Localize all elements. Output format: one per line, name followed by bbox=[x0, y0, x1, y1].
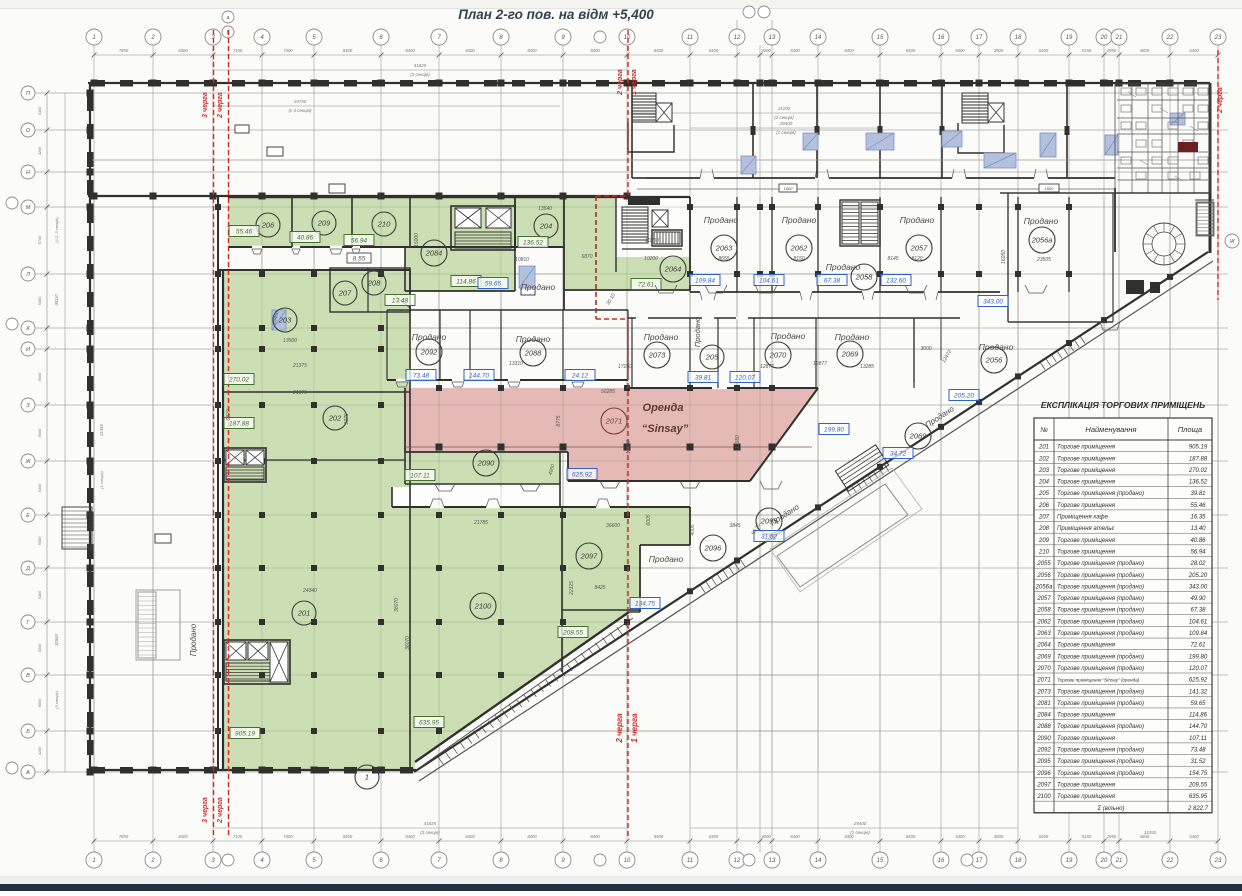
svg-text:“Sinsay”: “Sinsay” bbox=[642, 423, 689, 435]
svg-text:Л: Л bbox=[25, 272, 30, 278]
svg-text:Продано: Продано bbox=[900, 215, 935, 225]
svg-text:6400: 6400 bbox=[1039, 834, 1049, 839]
svg-text:21375: 21375 bbox=[292, 363, 307, 369]
svg-text:208: 208 bbox=[1038, 526, 1050, 532]
svg-text:38110: 38110 bbox=[54, 294, 59, 306]
svg-text:3400: 3400 bbox=[38, 106, 42, 115]
svg-text:Торгове приміщення (продано): Торгове приміщення (продано) bbox=[1057, 654, 1144, 660]
svg-text:31845: 31845 bbox=[54, 634, 59, 646]
svg-text:5600: 5600 bbox=[38, 428, 42, 437]
svg-text:2: 2 bbox=[150, 858, 155, 864]
svg-text:16: 16 bbox=[938, 35, 945, 41]
svg-text:Торгове приміщення (продано): Торгове приміщення (продано) bbox=[1057, 561, 1144, 567]
svg-text:Площа: Площа bbox=[1178, 425, 1202, 434]
svg-text:208: 208 bbox=[367, 279, 381, 288]
svg-text:5150: 5150 bbox=[1082, 48, 1092, 53]
svg-text:6400: 6400 bbox=[1189, 48, 1199, 53]
svg-text:5300: 5300 bbox=[38, 536, 42, 545]
svg-text:2 черга: 2 черга bbox=[217, 797, 224, 824]
svg-text:2081: 2081 bbox=[1036, 701, 1050, 707]
svg-text:15000: 15000 bbox=[414, 233, 420, 247]
svg-text:23: 23 bbox=[1214, 35, 1222, 41]
svg-text:134.75: 134.75 bbox=[635, 601, 655, 608]
svg-text:8400: 8400 bbox=[343, 48, 353, 53]
svg-text:104.61: 104.61 bbox=[759, 278, 779, 285]
svg-text:Найменування: Найменування bbox=[1085, 425, 1136, 434]
svg-text:199.80: 199.80 bbox=[1189, 654, 1208, 660]
svg-text:39.81: 39.81 bbox=[695, 375, 712, 382]
svg-text:2090: 2090 bbox=[1036, 736, 1051, 742]
svg-text:2071: 2071 bbox=[605, 417, 623, 426]
svg-text:Продано: Продано bbox=[412, 332, 447, 342]
svg-text:Торгове приміщення (продано): Торгове приміщення (продано) bbox=[1057, 608, 1144, 614]
svg-text:А: А bbox=[25, 770, 30, 776]
svg-text:2070: 2070 bbox=[1036, 666, 1051, 672]
svg-text:204: 204 bbox=[539, 222, 553, 231]
svg-text:Торгове приміщення (продано): Торгове приміщення (продано) bbox=[1057, 491, 1144, 497]
svg-text:Торгове приміщення: Торгове приміщення bbox=[1057, 549, 1116, 555]
svg-text:2090: 2090 bbox=[477, 459, 496, 468]
svg-text:8400: 8400 bbox=[178, 48, 188, 53]
svg-text:Продано: Продано bbox=[835, 332, 870, 342]
svg-text:Оренда: Оренда bbox=[643, 402, 684, 414]
svg-text:2062: 2062 bbox=[790, 244, 809, 253]
svg-text:6400: 6400 bbox=[709, 834, 719, 839]
svg-text:5400: 5400 bbox=[38, 590, 42, 599]
svg-text:203: 203 bbox=[1038, 468, 1050, 474]
svg-text:205: 205 bbox=[705, 353, 719, 362]
svg-text:2100: 2100 bbox=[474, 602, 493, 611]
svg-text:6400: 6400 bbox=[1189, 834, 1199, 839]
svg-text:(3 секція): (3 секція) bbox=[54, 691, 59, 709]
svg-text:41825: 41825 bbox=[424, 821, 437, 826]
svg-text:5400: 5400 bbox=[955, 48, 965, 53]
svg-text:8400: 8400 bbox=[654, 48, 664, 53]
svg-text:8400: 8400 bbox=[654, 834, 664, 839]
svg-text:13: 13 bbox=[769, 858, 776, 864]
svg-text:Торгове приміщення (продано): Торгове приміщення (продано) bbox=[1057, 748, 1144, 754]
svg-text:29400: 29400 bbox=[779, 121, 793, 126]
svg-text:8655: 8655 bbox=[718, 256, 729, 262]
svg-text:16: 16 bbox=[938, 858, 945, 864]
svg-text:Торгове приміщення: Торгове приміщення bbox=[1057, 456, 1116, 462]
svg-text:17: 17 bbox=[976, 858, 983, 864]
svg-text:ЕКСПЛІКАЦІЯ ТОРГОВИХ ПРИМІЩЕНЬ: ЕКСПЛІКАЦІЯ ТОРГОВИХ ПРИМІЩЕНЬ bbox=[1041, 400, 1205, 410]
svg-text:206: 206 bbox=[1038, 503, 1050, 509]
svg-text:209.55: 209.55 bbox=[562, 630, 583, 637]
svg-text:Ж: Ж bbox=[1228, 239, 1235, 245]
svg-text:8150: 8150 bbox=[793, 256, 804, 262]
svg-text:М: М bbox=[26, 205, 31, 211]
svg-text:201: 201 bbox=[1038, 445, 1049, 451]
svg-text:199.80: 199.80 bbox=[824, 427, 844, 434]
svg-text:205: 205 bbox=[1038, 491, 1050, 497]
svg-text:Торгове приміщення (продано): Торгове приміщення (продано) bbox=[1057, 666, 1144, 672]
svg-text:24340: 24340 bbox=[302, 588, 317, 594]
svg-text:2071: 2071 bbox=[1036, 678, 1050, 684]
svg-text:2069: 2069 bbox=[1036, 654, 1051, 660]
svg-text:13310: 13310 bbox=[509, 361, 523, 367]
svg-text:6400: 6400 bbox=[790, 834, 800, 839]
svg-text:(2 секція): (2 секція) bbox=[774, 115, 794, 120]
svg-text:3000: 3000 bbox=[920, 346, 931, 352]
svg-text:13350: 13350 bbox=[735, 435, 741, 449]
svg-text:107.11: 107.11 bbox=[1189, 736, 1207, 742]
svg-text:109.84: 109.84 bbox=[695, 278, 715, 285]
svg-text:7850: 7850 bbox=[119, 48, 129, 53]
svg-text:20: 20 bbox=[1100, 35, 1108, 41]
svg-text:22: 22 bbox=[1166, 35, 1174, 41]
svg-text:Е: Е bbox=[26, 513, 30, 519]
svg-text:7100: 7100 bbox=[233, 48, 243, 53]
svg-text:16.35: 16.35 bbox=[1190, 515, 1206, 521]
svg-text:Ж: Ж bbox=[24, 459, 31, 465]
svg-text:635.95: 635.95 bbox=[419, 720, 439, 727]
svg-text:2063: 2063 bbox=[1036, 631, 1051, 637]
svg-text:8400: 8400 bbox=[343, 834, 353, 839]
svg-text:(1,2, 3 секція): (1,2, 3 секція) bbox=[54, 217, 59, 243]
svg-text:Приміщення кафе: Приміщення кафе bbox=[1057, 515, 1109, 521]
svg-text:Торгове приміщення: Торгове приміщення bbox=[1057, 643, 1116, 649]
svg-text:107.11: 107.11 bbox=[410, 473, 430, 480]
svg-text:2058: 2058 bbox=[1036, 608, 1051, 614]
svg-text:Торгове приміщення: Торгове приміщення bbox=[1057, 503, 1116, 509]
svg-text:8425: 8425 bbox=[594, 585, 605, 591]
svg-text:Торгове приміщення: Торгове приміщення bbox=[1057, 736, 1116, 742]
svg-text:187.88: 187.88 bbox=[1189, 456, 1208, 462]
svg-text:59.65: 59.65 bbox=[485, 281, 502, 288]
svg-text:8400: 8400 bbox=[590, 834, 600, 839]
svg-text:Торгове приміщення: Торгове приміщення bbox=[1057, 445, 1116, 451]
svg-text:31.52: 31.52 bbox=[761, 534, 778, 541]
svg-text:67.38: 67.38 bbox=[1190, 608, 1206, 614]
svg-text:2096: 2096 bbox=[704, 544, 723, 553]
svg-text:План 2-го пов. на відм +5,400: План 2-го пов. на відм +5,400 bbox=[458, 7, 654, 22]
svg-text:13950: 13950 bbox=[626, 440, 632, 454]
svg-text:Продано: Продано bbox=[979, 342, 1014, 352]
svg-text:17250: 17250 bbox=[618, 364, 632, 370]
svg-text:114.86: 114.86 bbox=[1189, 713, 1208, 719]
svg-text:136.52: 136.52 bbox=[523, 240, 543, 247]
svg-text:1: 1 bbox=[365, 773, 369, 782]
svg-text:270.02: 270.02 bbox=[1188, 468, 1208, 474]
svg-text:73.48: 73.48 bbox=[413, 373, 430, 380]
svg-text:72.61: 72.61 bbox=[638, 282, 655, 289]
svg-text:(1 секція): (1 секція) bbox=[99, 471, 104, 489]
svg-text:П: П bbox=[26, 91, 30, 97]
svg-text:16050: 16050 bbox=[1001, 250, 1007, 264]
svg-text:2 черга: 2 черга bbox=[615, 713, 624, 744]
svg-text:2057: 2057 bbox=[1036, 596, 1051, 602]
svg-text:205.20: 205.20 bbox=[953, 393, 974, 400]
svg-text:Торгове приміщення: Торгове приміщення bbox=[1057, 713, 1116, 719]
svg-text:2070: 2070 bbox=[769, 351, 788, 360]
svg-text:23505: 23505 bbox=[1036, 257, 1051, 263]
svg-text:5600: 5600 bbox=[38, 372, 42, 381]
svg-text:Торгове приміщення (продано): Торгове приміщення (продано) bbox=[1057, 573, 1144, 579]
svg-text:4000: 4000 bbox=[761, 834, 771, 839]
svg-text:2092: 2092 bbox=[1036, 748, 1051, 754]
svg-text:21375: 21375 bbox=[292, 390, 307, 396]
svg-text:2100: 2100 bbox=[1036, 794, 1051, 800]
svg-text:114.86: 114.86 bbox=[456, 279, 476, 286]
svg-text:8400: 8400 bbox=[906, 48, 916, 53]
svg-text:2084: 2084 bbox=[1036, 713, 1051, 719]
svg-text:144.70: 144.70 bbox=[1189, 724, 1208, 730]
svg-text:56.94: 56.94 bbox=[351, 238, 368, 245]
svg-text:Торгове приміщення (продано): Торгове приміщення (продано) bbox=[1057, 619, 1144, 625]
svg-text:2062: 2062 bbox=[1036, 619, 1051, 625]
svg-text:(3 секція): (3 секція) bbox=[410, 72, 430, 77]
svg-text:7400: 7400 bbox=[283, 834, 293, 839]
svg-text:11350: 11350 bbox=[1144, 830, 1157, 835]
svg-text:72.61: 72.61 bbox=[1190, 643, 1205, 649]
svg-text:2073: 2073 bbox=[1036, 689, 1051, 695]
svg-text:36600: 36600 bbox=[606, 523, 620, 529]
svg-text:5400: 5400 bbox=[38, 483, 42, 492]
svg-text:38070: 38070 bbox=[394, 598, 400, 612]
svg-text:625.92: 625.92 bbox=[572, 472, 592, 479]
svg-text:40.86: 40.86 bbox=[1190, 538, 1206, 544]
svg-text:2069: 2069 bbox=[909, 432, 928, 441]
svg-text:Торгове приміщення (продано): Торгове приміщення (продано) bbox=[1057, 631, 1144, 637]
svg-text:Б: Б bbox=[26, 729, 30, 735]
svg-text:5400: 5400 bbox=[38, 296, 42, 305]
svg-text:Торгове приміщення: Торгове приміщення bbox=[1057, 794, 1116, 800]
svg-text:3900: 3900 bbox=[994, 48, 1004, 53]
svg-text:Продано: Продано bbox=[704, 215, 739, 225]
svg-text:56285: 56285 bbox=[601, 389, 615, 395]
svg-text:2057: 2057 bbox=[910, 244, 929, 253]
svg-text:(1 секція): (1 секція) bbox=[776, 130, 796, 135]
svg-text:2092: 2092 bbox=[420, 348, 439, 357]
svg-text:2056: 2056 bbox=[985, 356, 1004, 365]
svg-text:1: 1 bbox=[92, 35, 95, 41]
svg-text:55.46: 55.46 bbox=[1190, 503, 1206, 509]
svg-text:59.65: 59.65 bbox=[1190, 701, 1206, 707]
svg-text:209.55: 209.55 bbox=[1188, 782, 1208, 788]
svg-text:3 черга: 3 черга bbox=[202, 92, 209, 118]
svg-text:13540: 13540 bbox=[538, 206, 552, 212]
svg-text:204: 204 bbox=[1038, 480, 1050, 486]
svg-text:34.72: 34.72 bbox=[890, 451, 907, 458]
svg-text:3900: 3900 bbox=[994, 834, 1004, 839]
svg-text:4100: 4100 bbox=[38, 746, 42, 755]
svg-text:22325: 22325 bbox=[569, 581, 575, 596]
svg-text:8400: 8400 bbox=[465, 48, 475, 53]
svg-text:1 черга: 1 черга bbox=[631, 69, 638, 95]
svg-text:1: 1 bbox=[92, 858, 95, 864]
svg-text:2058: 2058 bbox=[855, 273, 874, 282]
svg-text:210: 210 bbox=[1038, 549, 1050, 555]
svg-text:2056а: 2056а bbox=[1035, 584, 1053, 590]
svg-text:8400: 8400 bbox=[906, 834, 916, 839]
svg-text:14: 14 bbox=[815, 35, 822, 41]
svg-text:2056: 2056 bbox=[1036, 573, 1051, 579]
svg-text:210: 210 bbox=[377, 220, 391, 229]
svg-text:19: 19 bbox=[1066, 858, 1073, 864]
svg-text:Торгове приміщення “Sinsay” (о: Торгове приміщення “Sinsay” (оренда) bbox=[1057, 678, 1140, 683]
svg-text:2073: 2073 bbox=[648, 351, 667, 360]
svg-text:Продано: Продано bbox=[521, 282, 556, 292]
svg-text:7850: 7850 bbox=[119, 834, 129, 839]
svg-text:132.60: 132.60 bbox=[886, 278, 906, 285]
svg-text:Продано: Продано bbox=[693, 317, 702, 347]
svg-text:56.94: 56.94 bbox=[1190, 549, 1206, 555]
svg-text:Продано: Продано bbox=[649, 554, 684, 564]
svg-text:17: 17 bbox=[976, 35, 983, 41]
svg-text:11: 11 bbox=[687, 858, 693, 864]
svg-text:5400: 5400 bbox=[955, 834, 965, 839]
svg-text:20: 20 bbox=[1100, 858, 1108, 864]
svg-text:1950: 1950 bbox=[1107, 48, 1117, 53]
svg-text:2056а: 2056а bbox=[1031, 236, 1053, 245]
svg-text:Торгове приміщення: Торгове приміщення bbox=[1057, 468, 1116, 474]
svg-text:6400: 6400 bbox=[790, 48, 800, 53]
svg-text:Торгове приміщення: Торгове приміщення bbox=[1057, 782, 1116, 788]
svg-text:8.55: 8.55 bbox=[353, 256, 366, 263]
svg-text:2095: 2095 bbox=[1036, 759, 1051, 765]
svg-text:9375: 9375 bbox=[344, 413, 350, 424]
svg-text:2097: 2097 bbox=[1036, 782, 1051, 788]
svg-text:Продано: Продано bbox=[516, 334, 551, 344]
svg-text:4000: 4000 bbox=[761, 48, 771, 53]
svg-text:Торгове приміщення (продано): Торгове приміщення (продано) bbox=[1057, 724, 1144, 730]
svg-text:Д: Д bbox=[25, 566, 30, 572]
svg-text:21: 21 bbox=[1115, 858, 1123, 864]
svg-text:№: № bbox=[1040, 427, 1048, 434]
svg-text:6400: 6400 bbox=[709, 48, 719, 53]
svg-text:13: 13 bbox=[769, 35, 776, 41]
svg-text:154.75: 154.75 bbox=[1189, 771, 1208, 777]
svg-text:7100: 7100 bbox=[233, 834, 243, 839]
svg-text:Н: Н bbox=[26, 170, 30, 176]
svg-text:8400: 8400 bbox=[405, 834, 415, 839]
svg-text:6005: 6005 bbox=[646, 514, 652, 525]
svg-text:205.20: 205.20 bbox=[1188, 573, 1208, 579]
svg-text:206: 206 bbox=[261, 221, 275, 230]
svg-text:19: 19 bbox=[1066, 35, 1073, 41]
svg-text:а: а bbox=[227, 15, 230, 21]
svg-text:13285: 13285 bbox=[860, 364, 874, 370]
svg-text:18: 18 bbox=[1015, 858, 1022, 864]
svg-text:6920: 6920 bbox=[226, 409, 232, 420]
svg-text:Приміщення ательє: Приміщення ательє bbox=[1057, 526, 1114, 532]
svg-text:22: 22 bbox=[1166, 858, 1174, 864]
svg-text:2 черга: 2 черга bbox=[617, 69, 624, 96]
svg-text:8400: 8400 bbox=[178, 834, 188, 839]
svg-text:Торгове приміщення (продано): Торгове приміщення (продано) bbox=[1057, 701, 1144, 707]
svg-text:8400: 8400 bbox=[527, 48, 537, 53]
svg-text:104.61: 104.61 bbox=[1189, 619, 1207, 625]
svg-text:136.52: 136.52 bbox=[1189, 480, 1208, 486]
svg-text:343.00: 343.00 bbox=[1189, 584, 1208, 590]
svg-text:207: 207 bbox=[1038, 515, 1050, 521]
svg-text:1 черга: 1 черга bbox=[630, 713, 639, 743]
svg-text:6700: 6700 bbox=[38, 235, 42, 244]
svg-text:3 черга: 3 черга bbox=[202, 797, 209, 823]
svg-text:21345: 21345 bbox=[99, 424, 104, 437]
svg-text:2097: 2097 bbox=[580, 552, 599, 561]
svg-text:Σ (вільно): Σ (вільно) bbox=[1097, 806, 1125, 812]
svg-text:905.19: 905.19 bbox=[1189, 445, 1208, 451]
svg-text:120.07: 120.07 bbox=[735, 375, 755, 382]
svg-text:Продано: Продано bbox=[189, 623, 198, 656]
svg-text:15: 15 bbox=[877, 858, 884, 864]
svg-text:Торгове приміщення: Торгове приміщення bbox=[1057, 480, 1116, 486]
svg-text:6870: 6870 bbox=[581, 254, 592, 260]
svg-text:36070: 36070 bbox=[405, 636, 411, 650]
svg-text:Торгове приміщення (продано): Торгове приміщення (продано) bbox=[1057, 771, 1144, 777]
svg-text:2084: 2084 bbox=[425, 249, 443, 258]
svg-text:23: 23 bbox=[1214, 858, 1222, 864]
svg-text:635.95: 635.95 bbox=[1189, 794, 1208, 800]
svg-text:39.81: 39.81 bbox=[1190, 491, 1205, 497]
svg-text:21785: 21785 bbox=[473, 520, 488, 526]
svg-text:Торгове приміщення (продано): Торгове приміщення (продано) bbox=[1057, 584, 1144, 590]
svg-text:Продано: Продано bbox=[1024, 216, 1059, 226]
svg-text:(3 секція): (3 секція) bbox=[420, 830, 440, 835]
svg-text:12877: 12877 bbox=[813, 361, 827, 367]
svg-text:2 черга: 2 черга bbox=[217, 92, 224, 119]
svg-text:67.38: 67.38 bbox=[824, 278, 841, 285]
svg-text:12: 12 bbox=[734, 35, 741, 41]
svg-text:109.84: 109.84 bbox=[1189, 631, 1208, 637]
svg-text:В: В bbox=[26, 673, 30, 679]
svg-text:4800: 4800 bbox=[1140, 48, 1150, 53]
svg-text:2069: 2069 bbox=[841, 350, 860, 359]
svg-text:49.90: 49.90 bbox=[1190, 596, 1206, 602]
svg-text:2: 2 bbox=[150, 35, 155, 41]
svg-text:3845: 3845 bbox=[729, 523, 740, 529]
svg-text:8145: 8145 bbox=[887, 256, 898, 262]
svg-text:905.19: 905.19 bbox=[235, 731, 255, 738]
svg-text:О: О bbox=[26, 128, 31, 134]
svg-text:203: 203 bbox=[278, 316, 292, 325]
svg-text:2088: 2088 bbox=[524, 349, 543, 358]
svg-text:40.86: 40.86 bbox=[297, 235, 314, 242]
svg-text:10200: 10200 bbox=[644, 256, 658, 262]
svg-text:73.48: 73.48 bbox=[1190, 748, 1206, 754]
svg-text:2055: 2055 bbox=[1036, 561, 1051, 567]
svg-text:10200: 10200 bbox=[645, 238, 659, 244]
svg-text:1600: 1600 bbox=[784, 186, 794, 191]
svg-text:5600: 5600 bbox=[38, 698, 42, 707]
svg-text:Продано: Продано bbox=[644, 332, 679, 342]
svg-text:(с 3 секція): (с 3 секція) bbox=[288, 108, 312, 113]
svg-text:2063: 2063 bbox=[715, 244, 734, 253]
svg-text:202: 202 bbox=[328, 414, 342, 423]
svg-text:И: И bbox=[26, 347, 30, 353]
svg-text:13.48: 13.48 bbox=[392, 298, 409, 305]
svg-text:8400: 8400 bbox=[465, 834, 475, 839]
svg-text:Торгове приміщення: Торгове приміщення bbox=[1057, 538, 1116, 544]
svg-text:12: 12 bbox=[734, 858, 741, 864]
svg-text:2096: 2096 bbox=[1036, 771, 1051, 777]
svg-text:10810: 10810 bbox=[515, 257, 529, 263]
svg-text:270.02: 270.02 bbox=[228, 377, 249, 384]
svg-text:28.02: 28.02 bbox=[1189, 561, 1206, 567]
svg-text:Торгове приміщення (продано): Торгове приміщення (продано) bbox=[1057, 596, 1144, 602]
svg-text:Продано: Продано bbox=[782, 215, 817, 225]
svg-text:8400: 8400 bbox=[590, 48, 600, 53]
svg-text:202: 202 bbox=[1038, 456, 1050, 462]
svg-text:18: 18 bbox=[1015, 35, 1022, 41]
svg-text:209: 209 bbox=[1038, 538, 1050, 544]
svg-text:31.52: 31.52 bbox=[1190, 759, 1206, 765]
svg-text:10: 10 bbox=[624, 858, 631, 864]
svg-text:144.70: 144.70 bbox=[469, 373, 489, 380]
